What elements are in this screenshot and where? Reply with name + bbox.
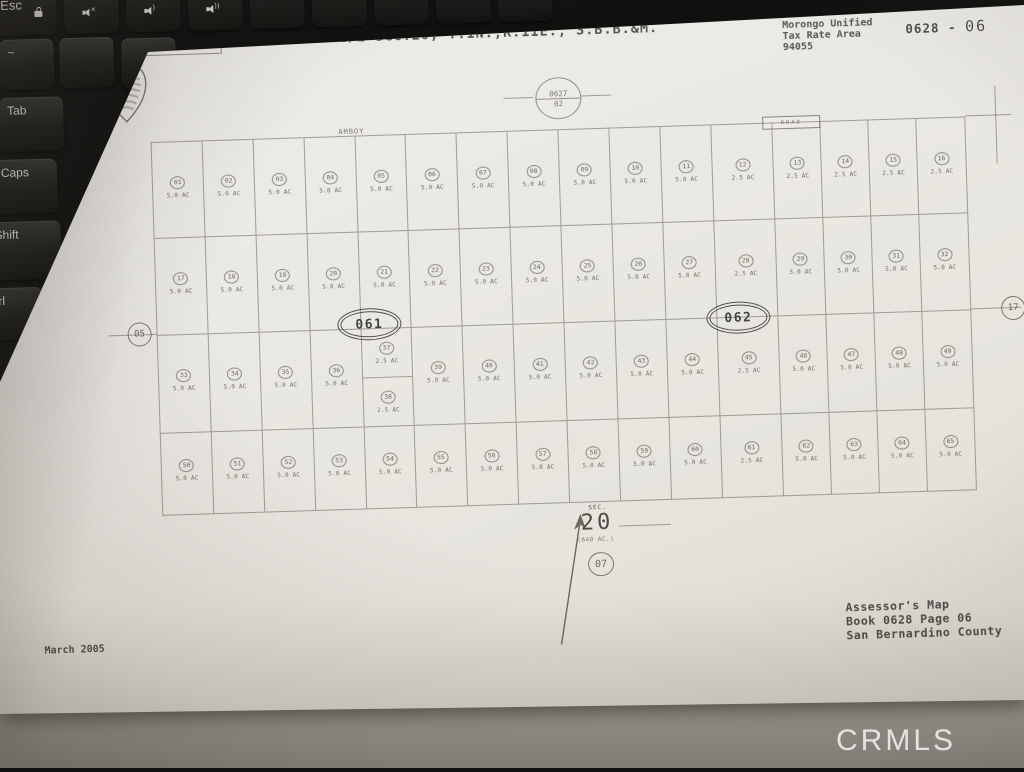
crmls-watermark: CRMLS — [836, 724, 956, 758]
parcel-half-cell: 382.5 AC — [363, 377, 414, 427]
map-book-page-code: 0628 - 06 — [905, 17, 987, 38]
parcel-cell: 175.0 AC — [155, 237, 209, 335]
adjacent-top-page: 02 — [536, 97, 580, 108]
parcel-number: 02 — [221, 174, 236, 187]
parcel-cell: 355.0 AC — [259, 331, 313, 430]
parcel-acreage: 2.5 AC — [882, 169, 905, 177]
crosshair-line-right — [581, 95, 611, 97]
parcel-acreage: 2.5 AC — [377, 406, 400, 414]
disclaimer-line-1: THIS MAP IS FOR TAX PURPOSES — [80, 36, 216, 47]
parcel-number: 34 — [227, 367, 242, 380]
parcel-acreage: 5.0 AC — [792, 365, 815, 373]
parcel-number: 21 — [377, 266, 392, 279]
parcel-number: 56 — [484, 449, 499, 462]
parcel-acreage: 5.0 AC — [795, 455, 818, 463]
parcel-acreage: 5.0 AC — [271, 285, 294, 293]
parcel-acreage: 5.0 AC — [675, 176, 698, 184]
parcel-number: 36 — [329, 364, 344, 377]
parcel-acreage: 5.0 AC — [627, 273, 650, 281]
section-number: 20 — [580, 510, 613, 536]
parcel-number: 01 — [170, 176, 185, 189]
parcel-number: 37 — [379, 341, 394, 354]
parcel-acreage: 5.0 AC — [936, 361, 959, 369]
parcel-number: 58 — [586, 446, 601, 459]
parcel-cell: 045.0 AC — [304, 137, 358, 234]
parcel-cell: 132.5 AC — [773, 122, 824, 218]
parcel-cell: 625.0 AC — [782, 413, 832, 495]
map-date: March 2005 — [44, 644, 105, 657]
section-acreage: (640 AC.) — [577, 536, 614, 544]
parcel-acreage: 5.0 AC — [481, 465, 504, 473]
parcel-acreage: 5.0 AC — [576, 275, 599, 283]
county-seal-icon — [96, 56, 156, 128]
disclaimer-stamp: THIS MAP IS FOR TAX PURPOSES OF NO VALID… — [75, 32, 222, 59]
disclaimer-line-2: OF NO VALIDITY (NOT FOR USE) — [81, 43, 217, 54]
parcel-cell: 265.0 AC — [612, 223, 666, 321]
parcel-number: 17 — [173, 272, 188, 285]
parcel-cell: 185.0 AC — [205, 236, 259, 334]
parcel-cell: 445.0 AC — [666, 318, 720, 417]
parcel-acreage: 2.5 AC — [375, 357, 398, 365]
parcel-acreage: 5.0 AC — [684, 459, 707, 467]
parcel-number: 05 — [374, 170, 389, 183]
parcel-number: 12 — [735, 158, 750, 171]
parcel-acreage: 5.0 AC — [573, 179, 596, 187]
parcel-cell: 275.0 AC — [663, 221, 717, 319]
parcel-cell: 245.0 AC — [511, 226, 565, 324]
parcel-cell: 162.5 AC — [916, 117, 967, 213]
parcel-number: 28 — [738, 254, 753, 267]
parcel-number: 57 — [535, 448, 550, 461]
block-number-061: 061 — [340, 310, 399, 338]
parcel-number: 52 — [281, 456, 296, 469]
parcel-number: 14 — [838, 155, 853, 168]
parcel-number: 54 — [382, 452, 397, 465]
parcel-cell: 605.0 AC — [669, 416, 722, 499]
parcel-number: 08 — [526, 165, 541, 178]
parcel-acreage: 5.0 AC — [472, 182, 495, 190]
parcel-cell: 025.0 AC — [202, 140, 256, 237]
parcel-acreage: 5.0 AC — [224, 383, 247, 391]
parcel-cell: 372.5 AC382.5 AC — [361, 328, 415, 427]
parcel-cell: 515.0 AC — [212, 431, 265, 514]
parcel-cell: 395.0 AC — [412, 326, 466, 425]
parcel-cell: 075.0 AC — [457, 132, 511, 229]
parcel-acreage: 5.0 AC — [523, 181, 546, 189]
boundary-extension-top-right — [965, 114, 1011, 116]
parcel-number: 26 — [631, 258, 646, 271]
map-content: THIS MAP IS FOR TAX PURPOSES OF NO VALID… — [0, 0, 1024, 772]
parcel-cell: 465.0 AC — [779, 315, 830, 413]
parcel-cell: 435.0 AC — [615, 320, 669, 419]
parcel-acreage: 5.0 AC — [681, 369, 704, 377]
parcel-cell: 555.0 AC — [415, 424, 468, 507]
parcel-acreage: 5.0 AC — [885, 265, 908, 273]
parcel-acreage: 5.0 AC — [837, 267, 860, 275]
parcel-acreage: 5.0 AC — [633, 460, 656, 468]
parcel-number: 31 — [888, 249, 903, 262]
parcel-acreage: 5.0 AC — [173, 385, 196, 393]
tax-area-line-3: 94055 — [783, 39, 874, 53]
parcel-cell: 345.0 AC — [209, 333, 263, 432]
parcel-acreage: 5.0 AC — [933, 264, 956, 272]
parcel-number: 53 — [332, 454, 347, 467]
parcel-number: 20 — [326, 267, 341, 280]
parcel-acreage: 5.0 AC — [167, 192, 190, 200]
parcel-acreage: 5.0 AC — [379, 468, 402, 476]
parcel-acreage: 5.0 AC — [427, 377, 450, 385]
parcel-acreage: 5.0 AC — [430, 467, 453, 475]
parcel-acreage: 2.5 AC — [735, 270, 758, 278]
parcel-cell: 655.0 AC — [925, 408, 975, 490]
parcel-acreage: 5.0 AC — [322, 283, 345, 291]
parcel-cell: 225.0 AC — [409, 229, 463, 327]
parcel-cell: 545.0 AC — [364, 426, 417, 509]
parcel-number: 07 — [475, 166, 490, 179]
book-code: 0628 - — [905, 20, 957, 37]
parcel-cell: 325.0 AC — [919, 213, 970, 310]
adjacent-map-left: 05 — [127, 322, 152, 347]
parcel-number: 43 — [634, 354, 649, 367]
parcel-number: 16 — [934, 152, 949, 165]
parcel-cell: 195.0 AC — [256, 234, 310, 332]
parcel-acreage: 5.0 AC — [319, 187, 342, 195]
parcel-cell: 152.5 AC — [868, 119, 919, 215]
parcel-cell: 305.0 AC — [824, 216, 875, 313]
paper-shadow: THIS MAP IS FOR TAX PURPOSES OF NO VALID… — [0, 0, 1024, 768]
parcel-number: 59 — [637, 444, 652, 457]
parcel-acreage: 5.0 AC — [274, 382, 297, 390]
parcel-number: 38 — [380, 390, 395, 403]
parcel-acreage: 5.0 AC — [582, 462, 605, 470]
parcel-cell: 235.0 AC — [460, 228, 514, 326]
parcel-number: 25 — [580, 259, 595, 272]
parcel-acreage: 2.5 AC — [732, 174, 755, 182]
parcel-number: 63 — [847, 438, 862, 451]
parcel-acreage: 5.0 AC — [580, 372, 603, 380]
assessor-map-paper: THIS MAP IS FOR TAX PURPOSES OF NO VALID… — [0, 0, 1024, 768]
parcel-number: 04 — [323, 171, 338, 184]
parcel-acreage: 5.0 AC — [268, 189, 291, 197]
parcel-cell: 495.0 AC — [922, 310, 973, 408]
parcel-cell: 335.0 AC — [158, 334, 212, 433]
parcel-grid: 015.0 AC025.0 AC035.0 AC045.0 AC055.0 AC… — [151, 116, 977, 515]
parcel-number: 64 — [894, 436, 909, 449]
parcel-number: 65 — [943, 435, 958, 448]
parcel-number: 40 — [481, 359, 496, 372]
parcel-number: 50 — [179, 459, 194, 472]
parcel-number: 61 — [744, 441, 759, 454]
parcel-number: 10 — [628, 162, 643, 175]
parcel-acreage: 5.0 AC — [630, 370, 653, 378]
parcel-cell: 475.0 AC — [827, 313, 878, 411]
parcel-cell: 105.0 AC — [609, 127, 663, 224]
parcel-number: 19 — [275, 269, 290, 282]
parcel-acreage: 2.5 AC — [740, 457, 763, 465]
parcel-acreage: 5.0 AC — [939, 451, 962, 459]
parcel-number: 35 — [278, 366, 293, 379]
parcel-cell: 255.0 AC — [561, 225, 615, 323]
parcel-acreage: 5.0 AC — [373, 281, 396, 289]
adjacent-map-right: 17 — [1001, 296, 1024, 321]
page-number: 06 — [965, 17, 988, 36]
parcel-cell: 645.0 AC — [878, 410, 928, 492]
parcel-acreage: 5.0 AC — [891, 452, 914, 460]
parcel-cell: 415.0 AC — [514, 323, 568, 422]
map-title: N.1/2 Sec.20, T.1N.,R.11E., S.B.B.&M. — [239, 17, 739, 49]
parcel-number: 24 — [529, 261, 544, 274]
parcel-acreage: 5.0 AC — [218, 190, 241, 198]
parcel-cell: 575.0 AC — [517, 421, 570, 504]
parcel-number: 06 — [424, 168, 439, 181]
parcel-number: 22 — [427, 264, 442, 277]
parcel-acreage: 5.0 AC — [328, 470, 351, 478]
parcel-cell: 585.0 AC — [568, 419, 621, 502]
parcel-number: 42 — [583, 356, 598, 369]
parcel-acreage: 5.0 AC — [277, 471, 300, 479]
parcel-cell: 115.0 AC — [660, 125, 714, 222]
parcel-cell: 142.5 AC — [821, 120, 872, 216]
parcel-cell: 425.0 AC — [564, 322, 618, 421]
parcel-acreage: 5.0 AC — [226, 473, 249, 481]
parcel-cell: 095.0 AC — [558, 129, 612, 226]
parcel-cell: 485.0 AC — [875, 312, 926, 410]
parcel-acreage: 5.0 AC — [789, 268, 812, 276]
section-underline — [619, 524, 671, 527]
parcel-cell: 085.0 AC — [508, 130, 562, 227]
tax-rate-area: Morongo Unified Tax Rate Area 94055 — [782, 17, 873, 53]
assessor-footer: Assessor's Map Book 0628 Page 06 San Ber… — [845, 596, 1002, 643]
block-number-062: 062 — [709, 304, 768, 332]
parcel-cell: 065.0 AC — [406, 133, 460, 230]
parcel-number: 09 — [577, 163, 592, 176]
parcel-number: 49 — [940, 345, 955, 358]
parcel-number: 51 — [230, 457, 245, 470]
parcel-number: 46 — [796, 349, 811, 362]
parcel-number: 03 — [272, 173, 287, 186]
parcel-acreage: 5.0 AC — [888, 362, 911, 370]
parcel-cell: 035.0 AC — [253, 138, 307, 235]
parcel-number: 41 — [532, 358, 547, 371]
parcel-acreage: 5.0 AC — [678, 272, 701, 280]
parcel-number: 33 — [176, 369, 191, 382]
parcel-cell: 315.0 AC — [871, 215, 922, 312]
parcel-number: 32 — [937, 248, 952, 261]
crosshair-line-left — [503, 97, 533, 99]
adjacent-map-top: 0627 02 — [535, 76, 582, 119]
parcel-number: 44 — [685, 353, 700, 366]
parcel-acreage: 2.5 AC — [930, 168, 953, 176]
parcel-acreage: 5.0 AC — [221, 286, 244, 294]
parcel-acreage: 5.0 AC — [526, 277, 549, 285]
parcel-cell: 295.0 AC — [776, 218, 827, 315]
parcel-number: 48 — [892, 346, 907, 359]
parcel-cell: 015.0 AC — [152, 141, 206, 238]
parcel-cell: 505.0 AC — [161, 432, 214, 515]
parcel-acreage: 5.0 AC — [325, 380, 348, 388]
parcel-cell: 635.0 AC — [830, 411, 880, 493]
parcel-number: 30 — [841, 251, 856, 264]
parcel-cell: 055.0 AC — [355, 135, 409, 232]
parcel-cell: 535.0 AC — [313, 427, 366, 510]
parcel-acreage: 5.0 AC — [843, 454, 866, 462]
parcel-number: 62 — [799, 439, 814, 452]
parcel-acreage: 2.5 AC — [738, 367, 761, 375]
parcel-acreage: 5.0 AC — [478, 375, 501, 383]
parcel-acreage: 5.0 AC — [370, 185, 393, 193]
parcel-number: 39 — [430, 361, 445, 374]
parcel-acreage: 2.5 AC — [834, 171, 857, 179]
parcel-acreage: 5.0 AC — [424, 280, 447, 288]
parcel-number: 29 — [793, 252, 808, 265]
parcel-number: 47 — [844, 348, 859, 361]
parcel-acreage: 5.0 AC — [176, 475, 199, 483]
parcel-acreage: 5.0 AC — [421, 184, 444, 192]
parcel-acreage: 2.5 AC — [786, 172, 809, 180]
parcel-cell: 565.0 AC — [466, 423, 519, 506]
edge-tick-mark — [994, 85, 997, 163]
parcel-cell: 405.0 AC — [463, 325, 517, 424]
parcel-number: 45 — [741, 351, 756, 364]
parcel-cell: 595.0 AC — [618, 418, 671, 501]
parcel-acreage: 5.0 AC — [529, 374, 552, 382]
parcel-cell: 122.5 AC — [711, 123, 776, 220]
parcel-number: 11 — [679, 160, 694, 173]
parcel-cell: 612.5 AC — [720, 414, 784, 497]
parcel-number: 60 — [687, 443, 702, 456]
parcel-number: 15 — [885, 153, 900, 166]
parcel-acreage: 5.0 AC — [840, 364, 863, 372]
parcel-number: 13 — [790, 156, 805, 169]
parcel-number: 18 — [224, 270, 239, 283]
parcel-acreage: 5.0 AC — [624, 177, 647, 185]
parcel-number: 55 — [433, 451, 448, 464]
parcel-number: 23 — [478, 262, 493, 275]
parcel-acreage: 5.0 AC — [475, 278, 498, 286]
parcel-acreage: 5.0 AC — [532, 463, 555, 471]
parcel-number: 27 — [682, 256, 697, 269]
parcel-cell: 525.0 AC — [262, 429, 315, 512]
parcel-cell: 365.0 AC — [310, 330, 364, 429]
parcel-acreage: 5.0 AC — [170, 288, 193, 296]
